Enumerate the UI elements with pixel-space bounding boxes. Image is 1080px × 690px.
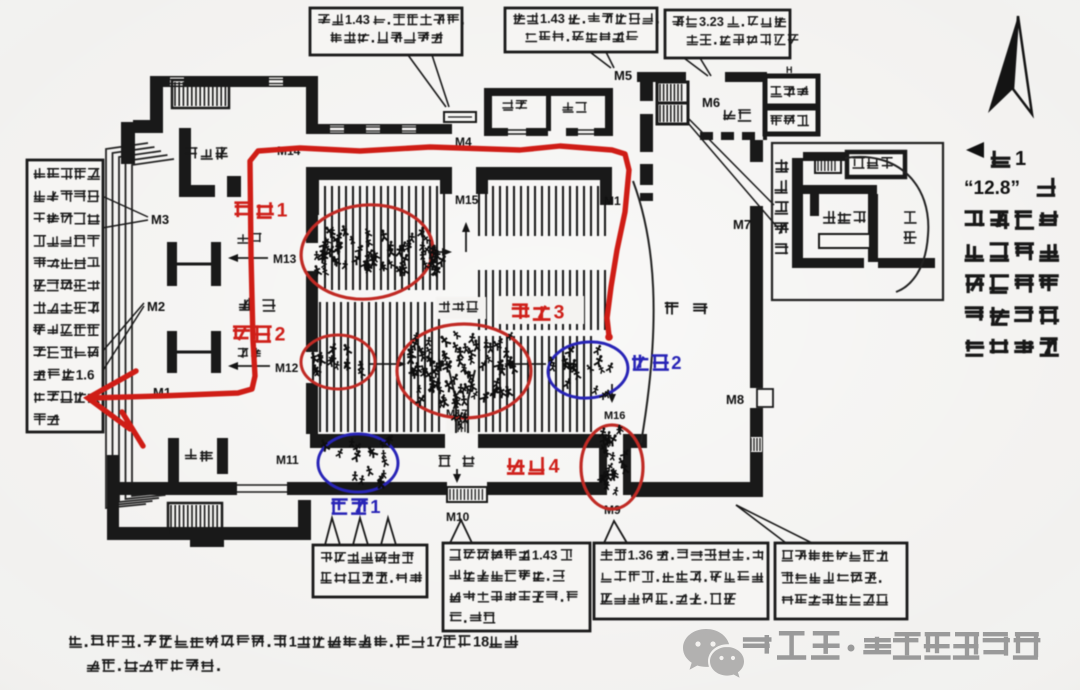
- svg-text:M6: M6: [702, 95, 720, 110]
- svg-text:M15: M15: [455, 193, 479, 207]
- svg-text:1: 1: [289, 635, 297, 651]
- svg-text:2: 2: [275, 324, 286, 346]
- svg-text:1: 1: [370, 496, 380, 517]
- svg-text:“12.8”: “12.8”: [964, 178, 1020, 199]
- svg-text:17: 17: [426, 635, 442, 651]
- svg-text:1: 1: [277, 200, 288, 222]
- svg-text:M8: M8: [726, 392, 744, 407]
- svg-text:18: 18: [473, 635, 489, 651]
- svg-text:M5: M5: [614, 68, 632, 83]
- svg-text:2: 2: [671, 352, 681, 373]
- svg-text:M13: M13: [273, 252, 297, 266]
- svg-text:1.6: 1.6: [76, 367, 95, 382]
- svg-text:M11: M11: [276, 453, 299, 467]
- svg-text:M10: M10: [446, 510, 470, 524]
- svg-text:M3: M3: [151, 212, 169, 227]
- svg-text:3.23: 3.23: [699, 14, 724, 29]
- svg-text:M16: M16: [604, 410, 625, 422]
- svg-text:M1: M1: [604, 194, 621, 208]
- svg-text:M12: M12: [275, 361, 299, 375]
- svg-text:M2: M2: [147, 299, 165, 314]
- svg-text:1.43: 1.43: [540, 11, 565, 26]
- svg-text:M7: M7: [733, 217, 751, 232]
- svg-text:H: H: [786, 65, 793, 75]
- svg-text:1.43: 1.43: [345, 12, 370, 27]
- svg-text:1.36: 1.36: [628, 547, 653, 562]
- svg-text:4: 4: [549, 456, 560, 478]
- svg-text:1: 1: [1015, 148, 1026, 170]
- svg-text:3: 3: [554, 302, 565, 324]
- svg-text:1.43: 1.43: [532, 547, 557, 562]
